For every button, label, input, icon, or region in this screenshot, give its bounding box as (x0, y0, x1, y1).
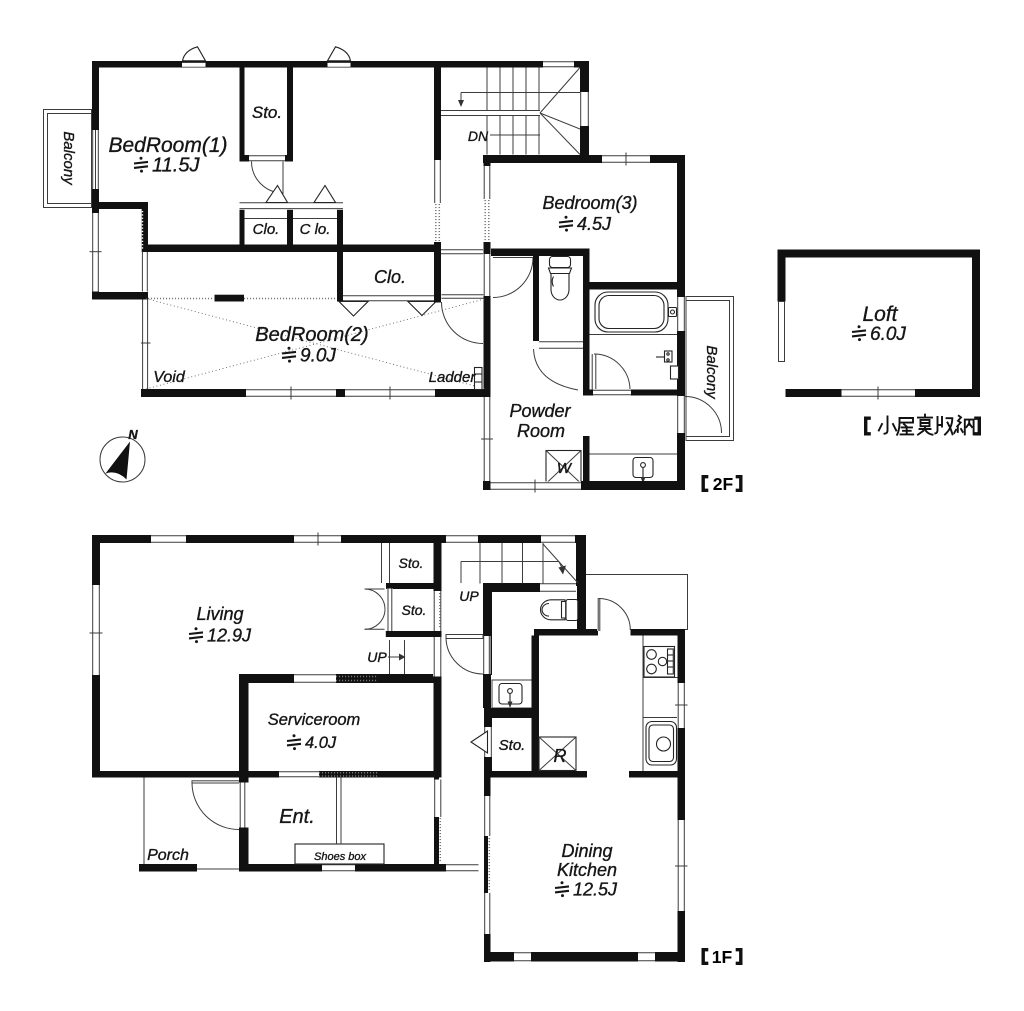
svg-text:BedRoom(2): BedRoom(2) (255, 324, 368, 346)
svg-text:Shoes box: Shoes box (314, 851, 366, 863)
svg-text:Clo.: Clo. (253, 221, 280, 238)
svg-text:C lo.: C lo. (300, 221, 331, 238)
svg-text:Clo.: Clo. (374, 267, 406, 287)
svg-text:4.5J: 4.5J (577, 214, 612, 234)
svg-text:2F: 2F (713, 474, 734, 494)
svg-text:Sto.: Sto. (399, 555, 424, 571)
svg-text:N: N (128, 427, 138, 442)
svg-text:Ent.: Ent. (279, 806, 315, 828)
svg-text:BedRoom(1): BedRoom(1) (108, 134, 227, 157)
svg-text:Sto.: Sto. (252, 103, 282, 122)
svg-text:Void: Void (153, 369, 186, 386)
svg-text:Powder: Powder (509, 401, 571, 421)
svg-text:12.9J: 12.9J (207, 625, 252, 645)
svg-text:1F: 1F (712, 947, 733, 967)
svg-text:Sto.: Sto. (402, 602, 427, 618)
svg-text:UP: UP (459, 588, 479, 604)
svg-text:Room: Room (517, 421, 565, 441)
svg-text:R: R (554, 746, 567, 766)
svg-text:4.0J: 4.0J (305, 734, 337, 752)
svg-text:DN: DN (468, 128, 489, 144)
svg-text:Porch: Porch (147, 847, 189, 864)
svg-text:11.5J: 11.5J (152, 155, 200, 177)
svg-text:Dining: Dining (561, 841, 612, 861)
svg-text:Ladder: Ladder (429, 369, 477, 386)
svg-text:Living: Living (196, 604, 243, 624)
svg-text:Loft: Loft (862, 303, 898, 326)
svg-text:Bedroom(3): Bedroom(3) (542, 193, 637, 213)
svg-text:Serviceroom: Serviceroom (268, 711, 361, 729)
svg-text:Sto.: Sto. (499, 737, 526, 754)
svg-text:12.5J: 12.5J (573, 879, 618, 899)
svg-text:Kitchen: Kitchen (557, 860, 617, 880)
svg-text:Balcony: Balcony (60, 131, 77, 186)
svg-text:Balcony: Balcony (703, 345, 720, 400)
svg-text:W: W (557, 460, 573, 477)
svg-text:6.0J: 6.0J (870, 324, 906, 345)
svg-text:UP: UP (367, 649, 387, 665)
svg-text:9.0J: 9.0J (300, 345, 336, 366)
